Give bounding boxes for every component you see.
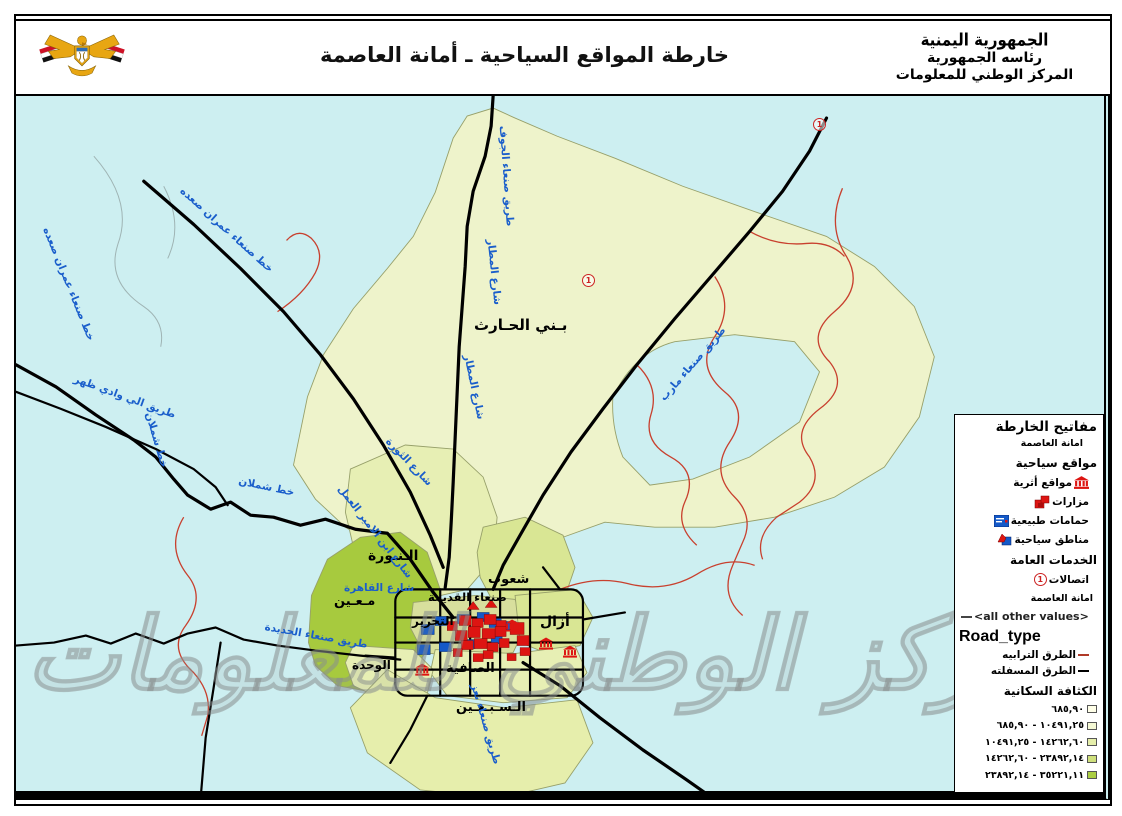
density-swatch [1087,705,1097,713]
legend-item-dirt-roads: الطرق الترابيه [959,649,1097,661]
line-swatch [1078,654,1089,656]
dirt-road [760,517,776,559]
legend-item-label: الطرق الترابيه [1002,649,1076,661]
telecom-icon: 1 [813,118,826,131]
density-swatch [1087,722,1097,730]
eagle-emblem-icon [32,24,132,86]
district-label-assabeen: الـسـبـعـين [456,700,526,715]
density-class-row: ٦٨٥,٩٠ [959,704,1097,715]
telecom-icon: 1 [582,274,595,287]
shrine-icon [1034,495,1050,509]
org-line2: المركز الوطني للمعلومات [867,67,1102,85]
density-swatch [1087,755,1097,763]
dirt-road [560,562,755,590]
density-range: ٢٣٨٩٢,١٤ - ١٤٢٦٢,٦٠ [985,753,1084,764]
legend-item-telecom: اتصالات 1 [959,573,1097,586]
dirt-road [176,517,209,736]
legend-amanah-2: امانة العاصمة [959,593,1097,604]
header: خارطة المواقع السياحية ـ أمانة العاصمة ا… [16,16,1110,96]
org-block: الجمهورية اليمنية رئاسه الجمهورية المركز… [867,25,1102,85]
map-sheet: خارطة المواقع السياحية ـ أمانة العاصمة ا… [14,14,1112,806]
density-range: ١٤٢٦٢,٦٠ - ١٠٤٩١,٢٥ [985,737,1084,748]
bath-icon [994,515,1009,527]
legend-item-paved-roads: الطرق المسفلته [959,665,1097,677]
legend-section-density: الكثافة السكانية [959,684,1097,698]
legend-road-type-title: Road_type [959,628,1097,646]
line-swatch [1078,670,1089,672]
district-label-bani-alharith: بـني الحـارث [474,316,567,334]
legend-item-antiquities: مواقع أثرية [959,476,1097,489]
legend-item-label: الطرق المسفلته [991,665,1076,677]
district-label-maeen: مـعـين [334,594,375,609]
road-wadi-dhahr [16,392,228,505]
legend-item-tourist-areas: مناطق سياحية [959,533,1097,546]
legend-item-shrines: مزارات [959,495,1097,509]
density-class-row: ١٠٤٩١,٢٥ - ٦٨٥,٩٠ [959,720,1097,731]
dirt-road [278,233,320,311]
road-label-cairo: شارع القاهرة [344,582,414,594]
density-class-row: ٣٥٢٢١,١١ - ٢٣٨٩٢,١٤ [959,770,1097,781]
density-class-row: ٢٣٨٩٢,١٤ - ١٤٢٦٢,٦٠ [959,753,1097,764]
page-title: خارطة المواقع السياحية ـ أمانة العاصمة [182,43,867,67]
legend-item-label: اتصالات [1049,574,1089,586]
yemen-emblem [24,24,182,86]
line-swatch [961,616,972,618]
district-label-attahrir: التحرير [412,614,454,628]
map-graphics [16,96,1104,798]
legend-item-label: حمامات طبيعية [1011,515,1089,527]
density-class-row: ١٤٢٦٢,٦٠ - ١٠٤٩١,٢٥ [959,737,1097,748]
legend: مفاتيح الخارطة امانة العاصمة مواقع سياحي… [954,414,1104,793]
telecom-icon: 1 [1034,573,1047,586]
density-range: ٦٨٥,٩٠ [1051,704,1084,715]
district-label-old-sanaa: صنعاء القديمة [428,590,507,604]
legend-item-label: مواقع أثرية [1013,477,1072,489]
tourist-area-icon [997,533,1012,546]
legend-subtitle: امانة العاصمة [959,438,1097,449]
monument-icon [1074,476,1089,489]
legend-item-baths: حمامات طبيعية [959,515,1097,527]
district-label-shuub: شعوب [488,572,529,587]
density-range: ١٠٤٩١,٢٥ - ٦٨٥,٩٠ [997,720,1084,731]
district-label-azal: أزال [540,614,570,630]
wadi-lines [94,156,175,347]
density-range: ٣٥٢٢١,١١ - ٢٣٨٩٢,١٤ [985,770,1084,781]
org-calligraphy: الجمهورية اليمنية [867,30,1102,52]
legend-title: مفاتيح الخارطة [959,419,1097,435]
road-south-west [201,643,221,798]
legend-item-label: مزارات [1052,496,1089,508]
legend-item-label: مناطق سياحية [1014,534,1089,546]
map-canvas: المركز الوطني للمعلومات 1 1 بـني الحـارث… [16,96,1110,800]
district-label-assafiyah: الصافية [446,661,495,676]
legend-section-services: الخدمات العامة [959,553,1097,567]
density-swatch [1087,771,1097,779]
legend-item-label: <all other values> [974,610,1089,623]
org-line1: رئاسه الجمهورية [867,50,1102,68]
density-swatch [1087,738,1097,746]
district-label-alwahdah: الوحدة [352,658,391,672]
legend-item-all-other-values: <all other values> [959,610,1097,623]
legend-section-tourist: مواقع سياحية [959,456,1097,470]
